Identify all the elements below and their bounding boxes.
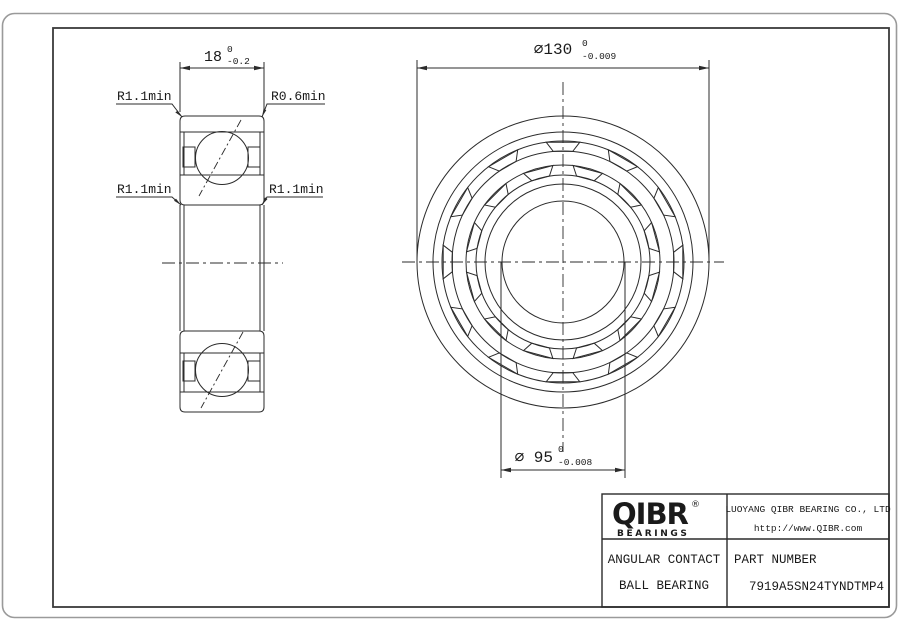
outer-ring-section-top [180,116,264,132]
outer-ring-section-bottom [180,392,264,412]
cage-section [183,361,195,381]
label-radius-top-left: R1.1min [117,89,172,104]
cage-pocket [618,317,642,341]
label-radius-top-right: R0.6min [271,89,326,104]
dim-width-value: 18 [204,49,222,66]
cage-pocket [485,317,509,341]
title-block: QIBR ® BEARINGS LUOYANG QIBR BEARING CO.… [602,494,891,607]
company-website: http://www.QIBR.com [754,523,863,534]
inner-ring-section-bottom [180,331,264,353]
bearing-drawing-svg: 18 0 -0.2 R1.1min R0.6min R1.1min R1.1mi… [0,0,900,636]
cage-section [183,147,195,167]
label-radius-mid-left: R1.1min [117,182,172,197]
dim-width-tol-lower: -0.2 [227,56,250,67]
cage-pocket [485,184,509,208]
dim-bore-value: ⌀ 95 [515,449,553,467]
label-radius-mid-right: R1.1min [269,182,324,197]
section-view [162,116,283,412]
front-view [402,82,724,452]
logo-subtext: BEARINGS [617,529,689,539]
part-number-label: PART NUMBER [734,553,817,567]
inner-ring-section-top [180,175,264,205]
drawing-sheet: 18 0 -0.2 R1.1min R0.6min R1.1min R1.1mi… [0,0,900,636]
dim-od-value: ⌀130 [534,41,572,59]
company-name: LUOYANG QIBR BEARING CO., LTD [725,504,891,515]
cage-section [248,361,260,381]
cage-pocket [618,184,642,208]
ball-top [196,132,249,185]
dim-bore-tol-upper: 0 [558,444,564,455]
product-type-line2: BALL BEARING [619,579,709,593]
dim-bore-tol-lower: -0.008 [558,457,593,468]
dim-od-tol-lower: -0.009 [582,51,617,62]
part-number-value: 7919A5SN24TYNDTMP4 [749,580,884,594]
cage-pocket [546,142,580,151]
logo-text: QIBR [612,497,689,531]
registered-mark-icon: ® [691,500,700,510]
product-type-line1: ANGULAR CONTACT [608,553,721,567]
company-logo: QIBR ® BEARINGS [612,497,700,539]
radius-labels: R1.1min R0.6min R1.1min R1.1min [116,89,326,205]
cage-section [248,147,260,167]
dim-width: 18 0 -0.2 [180,44,264,112]
dim-width-tol-upper: 0 [227,44,233,55]
drawing-frame [53,28,889,607]
dim-od-tol-upper: 0 [582,38,588,49]
